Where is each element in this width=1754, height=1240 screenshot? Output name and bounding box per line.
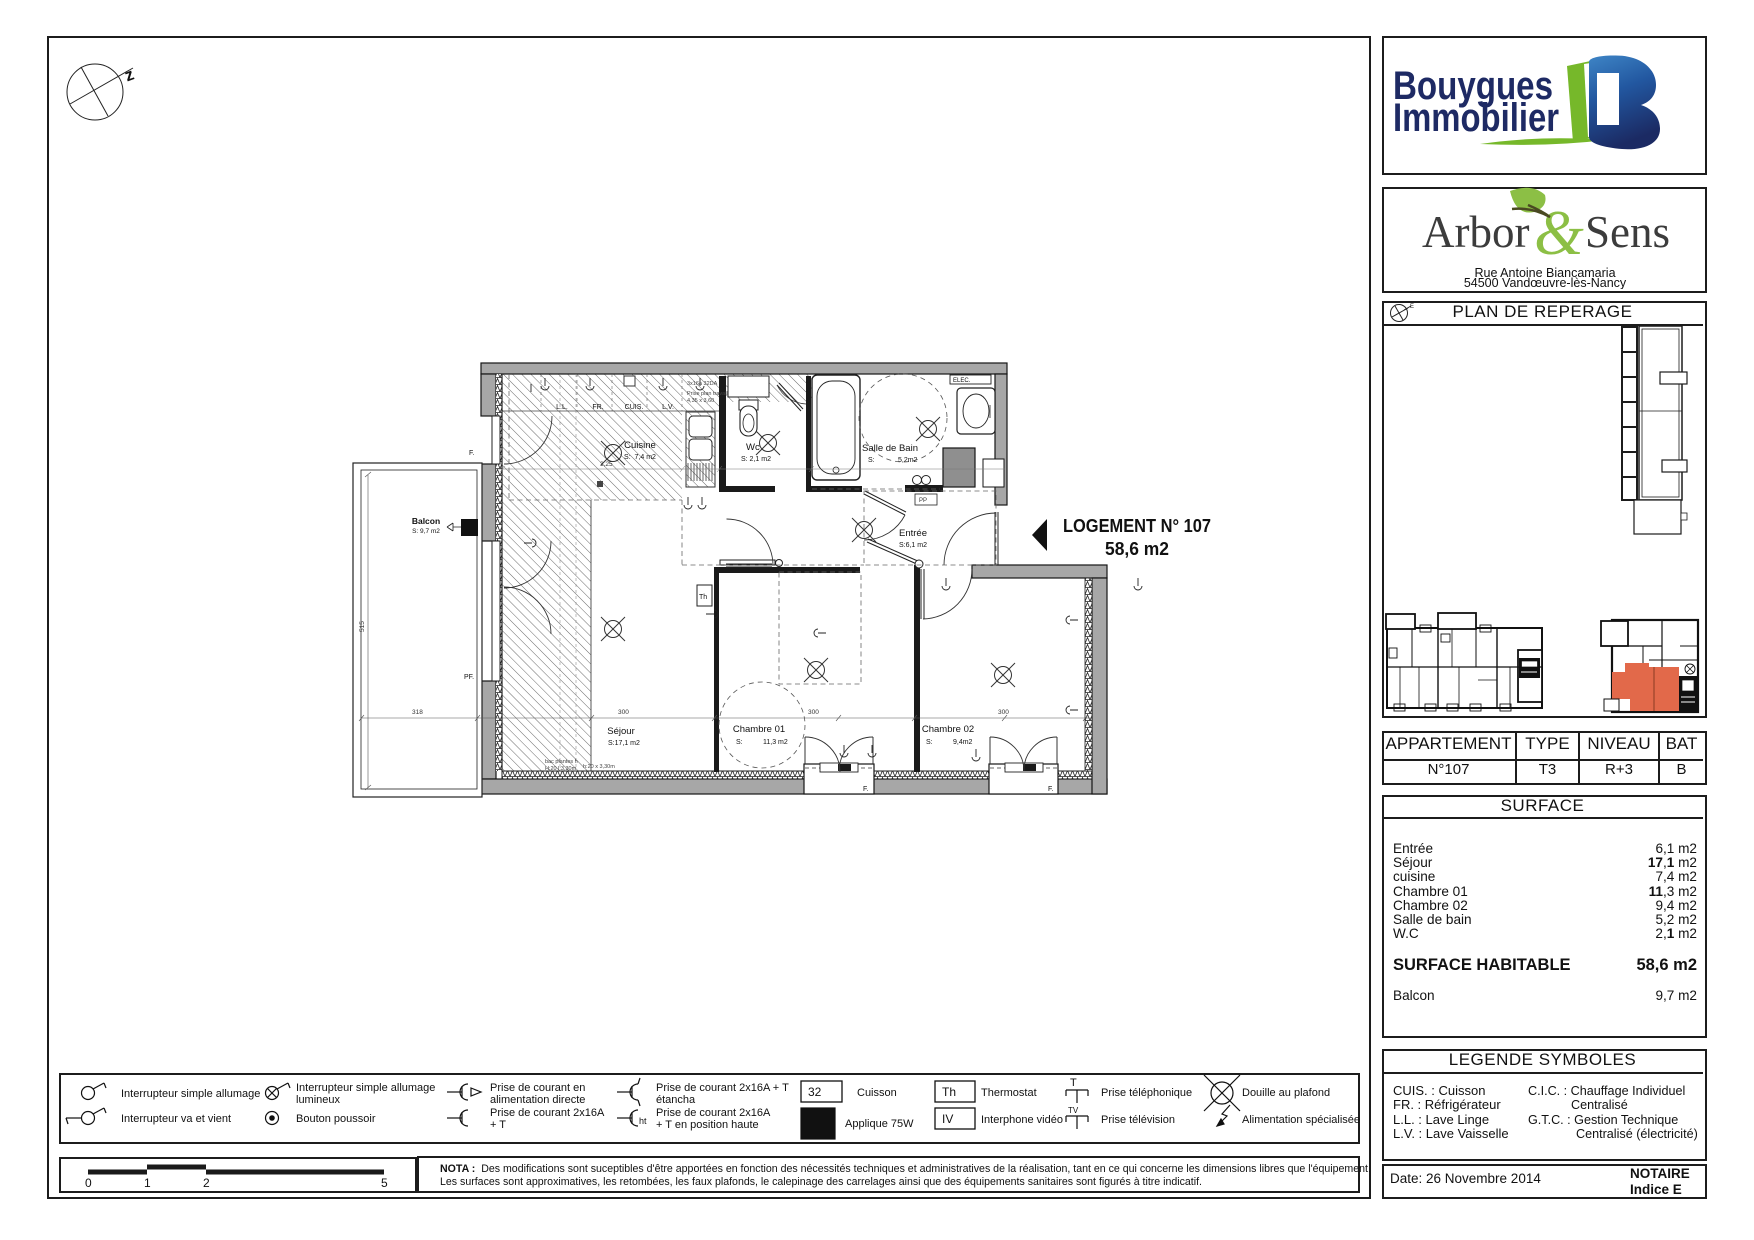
svg-text:E: E xyxy=(1410,304,1414,310)
